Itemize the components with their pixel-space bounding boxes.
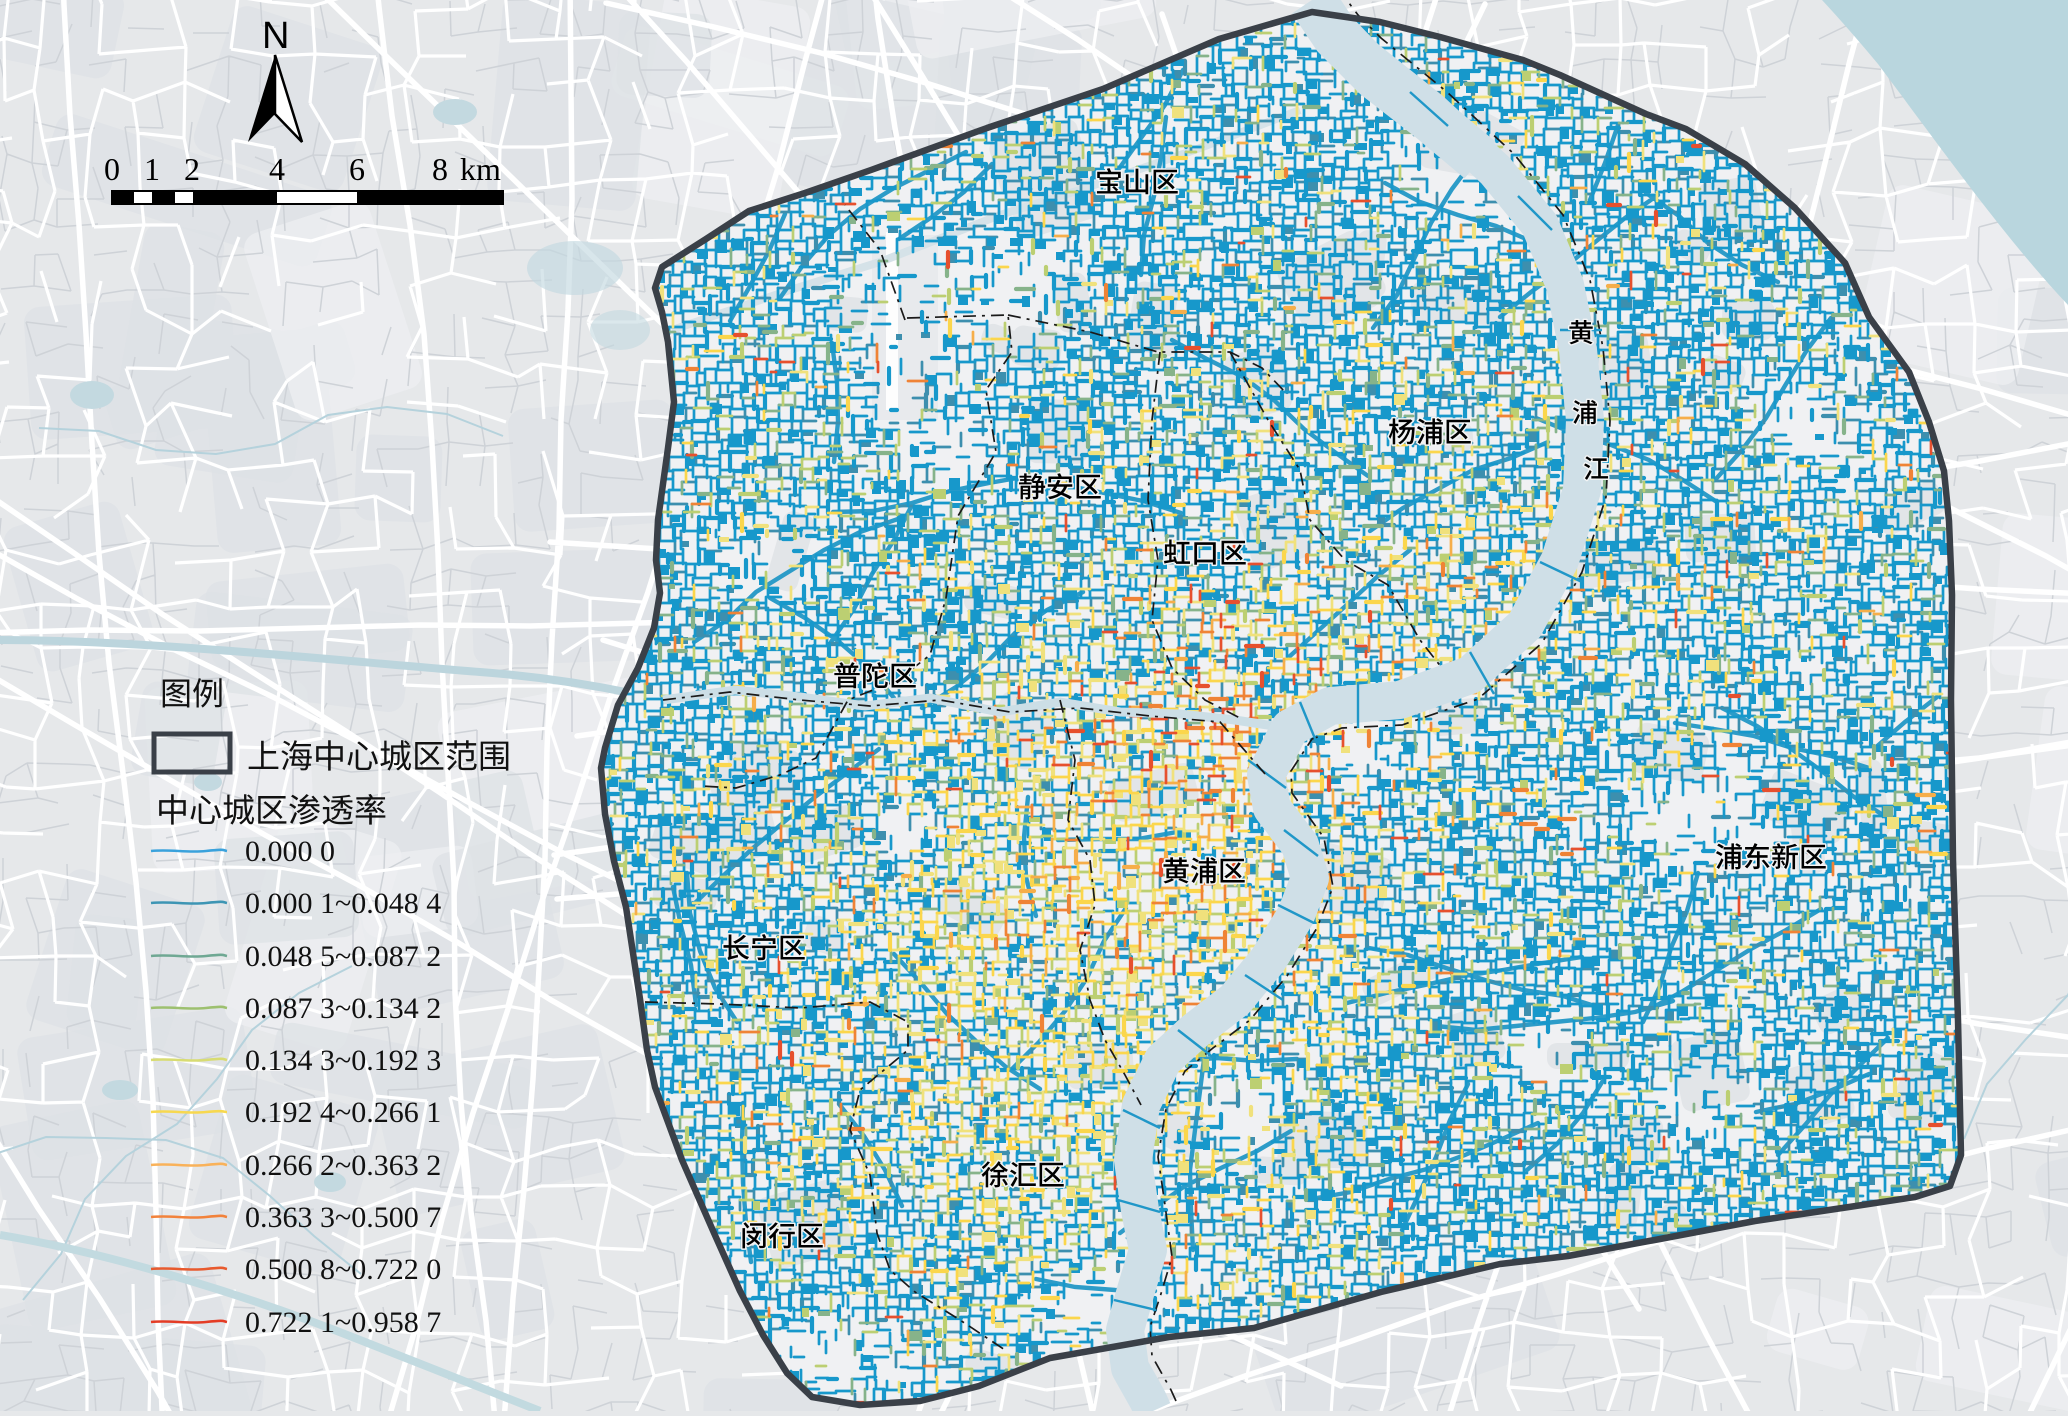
svg-text:0: 0 [104, 151, 120, 187]
svg-text:0.000 1~0.048 4: 0.000 1~0.048 4 [245, 887, 441, 920]
svg-text:0.722 1~0.958 7: 0.722 1~0.958 7 [245, 1306, 441, 1339]
svg-text:0.363 3~0.500 7: 0.363 3~0.500 7 [245, 1201, 441, 1234]
svg-text:6: 6 [349, 151, 365, 187]
svg-text:0.192 4~0.266 1: 0.192 4~0.266 1 [245, 1096, 441, 1129]
svg-text:1: 1 [144, 151, 160, 187]
svg-text:km: km [460, 151, 501, 187]
svg-text:N: N [262, 15, 289, 57]
svg-text:0.087 3~0.134 2: 0.087 3~0.134 2 [245, 992, 441, 1025]
svg-text:4: 4 [269, 151, 285, 187]
svg-text:0.134 3~0.192 3: 0.134 3~0.192 3 [245, 1044, 441, 1077]
svg-text:0.000 0: 0.000 0 [245, 835, 335, 868]
svg-text:8: 8 [432, 151, 448, 187]
svg-text:0.048 5~0.087 2: 0.048 5~0.087 2 [245, 940, 441, 973]
svg-text:2: 2 [184, 151, 200, 187]
svg-text:0.500 8~0.722 0: 0.500 8~0.722 0 [245, 1253, 441, 1286]
svg-text:0.266 2~0.363 2: 0.266 2~0.363 2 [245, 1149, 441, 1182]
